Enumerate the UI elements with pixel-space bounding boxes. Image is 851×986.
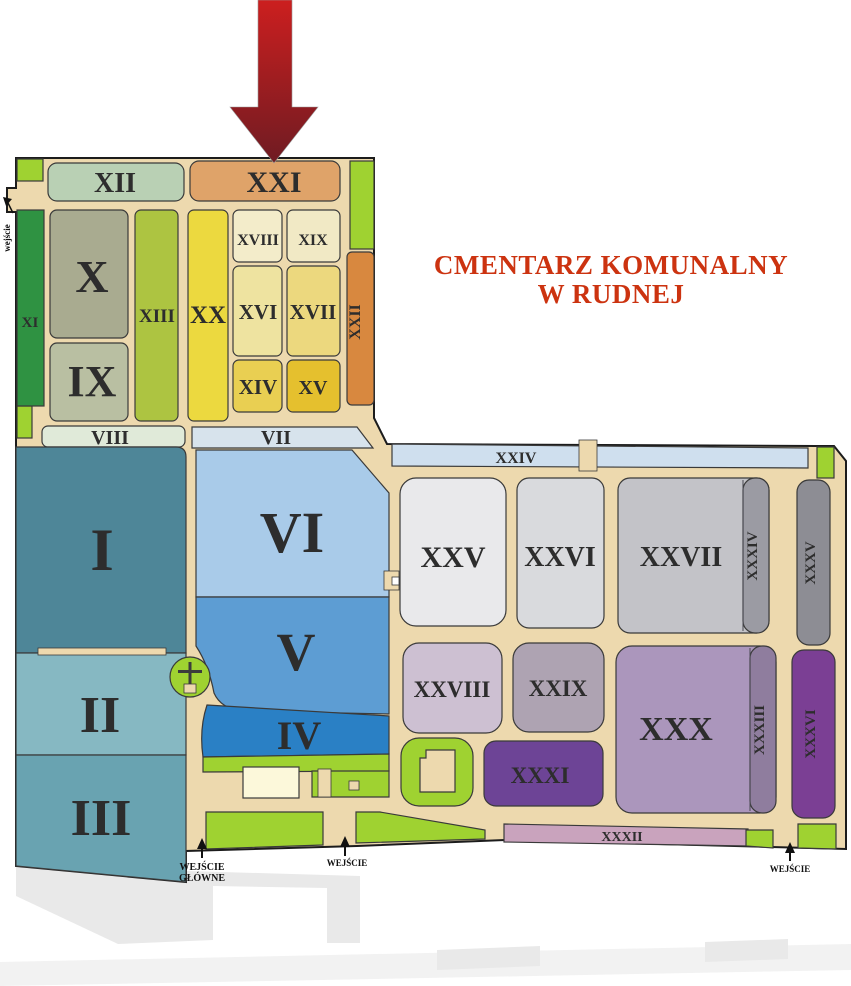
entrance-right-label: WEJŚCIE	[770, 864, 811, 874]
grass-bottom-right-b	[798, 824, 836, 849]
section-VII-label: VII	[261, 427, 291, 449]
entrance-main-label-line2: GŁÓWNE	[179, 872, 225, 884]
page-title-line1: CMENTARZ KOMUNALNY	[434, 250, 788, 280]
section-V-label: V	[277, 622, 316, 682]
section-XXI-label: XXI	[246, 166, 301, 199]
section-I-label: I	[90, 517, 113, 583]
path-notch-in-grass	[318, 769, 331, 797]
section-XII-label: XII	[94, 168, 136, 199]
section-VIII-label: VIII	[91, 427, 129, 449]
section-XXXI-label: XXXI	[511, 763, 570, 788]
section-XI-label: XI	[22, 315, 39, 331]
grass-corner-top-right	[350, 161, 374, 249]
page-title-line2: W RUDNEJ	[538, 279, 685, 309]
section-XXIV-label: XXIV	[496, 450, 537, 467]
section-XXVII-label: XXVII	[640, 542, 722, 573]
section-XVII-label: XVII	[290, 300, 337, 324]
section-XXV-label: XXV	[421, 541, 486, 574]
funeral-home-building	[243, 767, 299, 798]
section-XX-label: XX	[190, 302, 226, 329]
locator-arrow-icon	[230, 0, 318, 163]
section-XXIX-label: XXIX	[529, 676, 588, 701]
section-XXXIII-label: XXXIII	[752, 705, 768, 755]
section-XV-label: XV	[299, 377, 328, 399]
cemetery-map-page: XII XXI X IX XI XIII XX XVIII XIX XVI XV…	[0, 0, 851, 986]
entrance-main-label-line1: WEJŚCIE	[179, 861, 224, 873]
section-XXVI-label: XXVI	[524, 542, 596, 573]
cemetery-map: XII XXI X IX XI XIII XX XVIII XIX XVI XV…	[0, 0, 851, 986]
section-II-label: II	[80, 687, 120, 744]
section-VI-label: VI	[260, 500, 324, 565]
grass-corner-top-left	[17, 159, 43, 181]
section-XXX-label: XXX	[639, 711, 713, 748]
section-IX-label: IX	[68, 357, 117, 406]
cross-pedestal	[184, 684, 196, 693]
road-patch-left	[437, 946, 540, 970]
entrance-middle-label: WEJŚCIE	[327, 858, 368, 868]
section-III-label: III	[71, 790, 132, 847]
grass-corner-right-top	[817, 447, 834, 478]
section-XXXIV-label: XXXIV	[745, 531, 761, 580]
path-bridge-XXIV	[579, 440, 597, 471]
section-XXVIII-label: XXVIII	[414, 677, 491, 702]
section-IV-label: IV	[277, 713, 322, 758]
section-XXXII-label: XXXII	[601, 830, 642, 845]
section-X-label: X	[75, 251, 108, 302]
road-patch-right	[705, 939, 788, 962]
section-XIII-label: XIII	[139, 306, 175, 327]
section-XVI-label: XVI	[239, 300, 278, 324]
path-between-I-II	[38, 648, 166, 655]
section-XI-area	[17, 210, 44, 406]
section-XXXVI-label: XXXVI	[803, 709, 819, 758]
grass-bottom-right-a	[746, 830, 773, 848]
path-notch-small	[349, 781, 359, 790]
section-XIV-label: XIV	[239, 375, 278, 399]
section-XXII-label: XXII	[347, 304, 364, 340]
section-XIX-label: XIX	[298, 232, 328, 249]
grass-corner-left-lower	[17, 406, 32, 438]
section-XXXV-label: XXXV	[803, 541, 819, 584]
section-XVIII-label: XVIII	[237, 232, 279, 249]
entrance-left-label: wejście	[2, 224, 12, 251]
grass-bottom-left-strip	[206, 812, 323, 849]
gate-notch-inner	[392, 577, 399, 585]
section-XXIV-area	[392, 444, 808, 468]
